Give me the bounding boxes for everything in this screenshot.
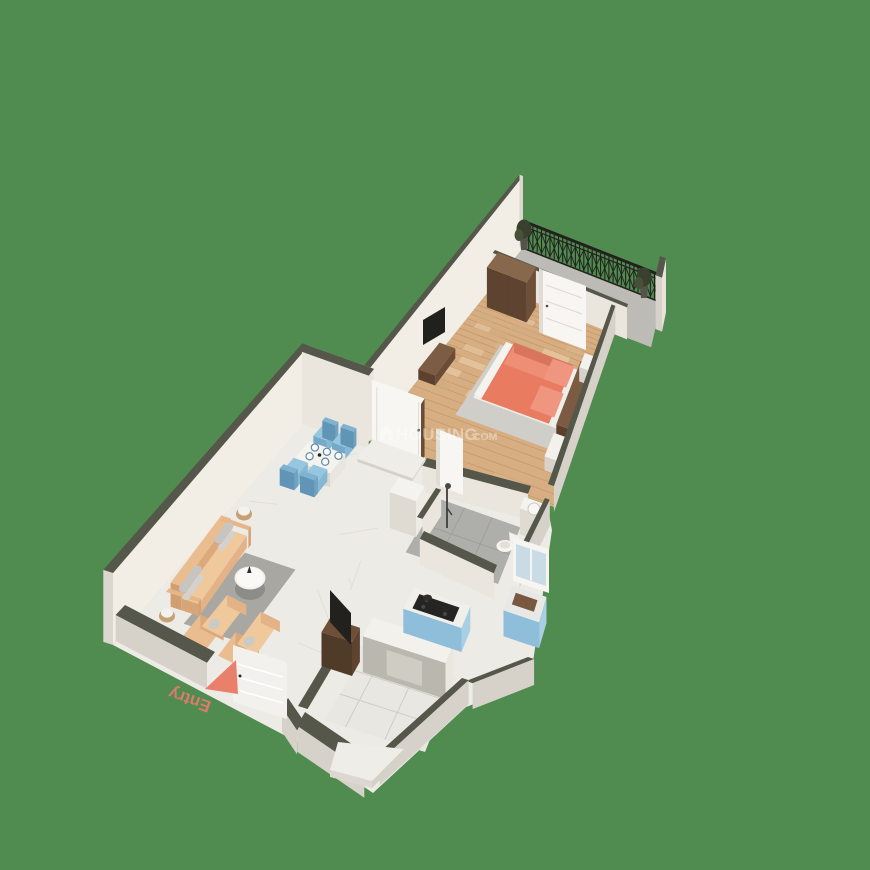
svg-text:.COM: .COM <box>470 431 498 443</box>
svg-text:HOUSING: HOUSING <box>396 425 478 444</box>
